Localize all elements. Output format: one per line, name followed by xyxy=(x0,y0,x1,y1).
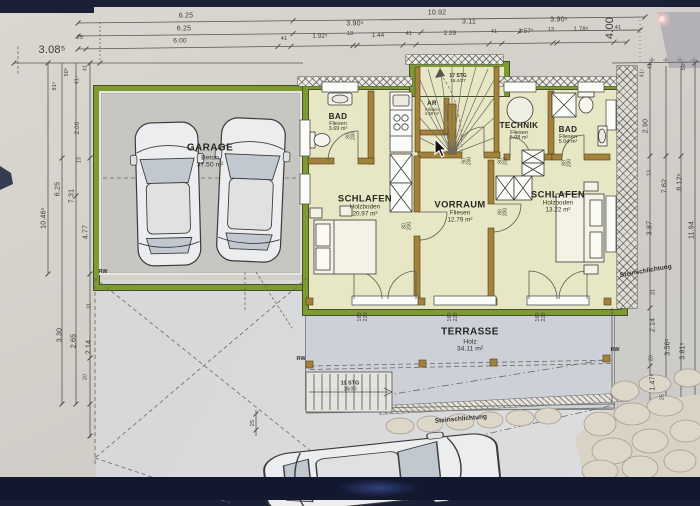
house-outline xyxy=(303,84,627,315)
dimension-label: 1.44 xyxy=(372,32,384,38)
dimension-label: 3.30 xyxy=(56,328,63,342)
terrasse-area xyxy=(306,303,614,409)
dimension-label: 50⁵ xyxy=(65,68,71,77)
dimension-label: 91⁵ xyxy=(53,82,59,91)
wall-hatching xyxy=(497,77,617,86)
dimension-label: 6.25 xyxy=(177,25,191,32)
dimension-label: 3.90⁵ xyxy=(346,20,364,27)
dimension-label: 41 xyxy=(281,37,288,43)
dimension-label: 2.65 xyxy=(70,334,77,348)
dimension-label: 41⁵ xyxy=(75,76,80,84)
dimension-label: 31 xyxy=(651,289,656,295)
dimension-label: 1.78⁵ xyxy=(573,27,588,33)
dimension-label: 1.47⁵ xyxy=(649,373,656,391)
dimension-label: 41 xyxy=(491,30,498,36)
dimension-label: 7.62 xyxy=(661,179,668,193)
dimension-label: 41 xyxy=(615,26,622,32)
edge-smudge xyxy=(0,166,13,190)
dimension-label: 41 xyxy=(648,63,653,69)
dimension-label: 13 xyxy=(647,170,652,176)
dimension-label: 4.77 xyxy=(82,225,89,239)
stairwell-bay-outline xyxy=(410,62,509,96)
dimension-label: 3.56⁵ xyxy=(664,338,671,356)
steinschlichtung-hatch-right xyxy=(617,66,637,308)
dimension-label: 20 xyxy=(83,374,88,380)
dimension-label: 41 xyxy=(406,32,413,38)
window-chrome-top-corner xyxy=(0,0,94,13)
dimension-label: 1.92⁵ xyxy=(312,34,327,40)
dimension-label: 10.46⁵ xyxy=(40,207,47,229)
window-chrome-bottom-bar xyxy=(0,477,700,500)
dimension-label: 6.00 xyxy=(173,39,186,46)
dimension-label: 3.81⁵ xyxy=(679,342,686,360)
dimension-label: 2.90 xyxy=(642,119,649,133)
dimension-label: 6.25 xyxy=(179,12,193,19)
dimension-label: 8.12⁵ xyxy=(676,173,683,191)
dimension-label: 41⁵ xyxy=(640,69,645,77)
wall-hatching xyxy=(406,55,503,64)
dimension-label: 13 xyxy=(347,32,354,38)
dimension-label: 13 xyxy=(77,157,82,163)
dimension-label: 4.00 xyxy=(605,17,617,39)
window-chrome-top-bar xyxy=(0,0,700,7)
dimension-label: 25 xyxy=(77,36,84,42)
dimension-label: 2.14 xyxy=(85,340,92,354)
dimension-label: 2.29 xyxy=(444,31,456,37)
screenshot-root: 6.2510.926.253.90⁵3.113.90⁵256.00411.92⁵… xyxy=(0,0,700,500)
dimension-label: 2.14 xyxy=(649,318,656,332)
photo-background-corner xyxy=(656,12,700,68)
dimension-label: 20 xyxy=(649,355,654,361)
dimension-label: 41 xyxy=(83,65,88,71)
dimension-label: 25 xyxy=(660,394,665,400)
garage-floor xyxy=(99,91,302,275)
dimension-label: 31 xyxy=(87,303,92,309)
dimension-label: 3.90⁵ xyxy=(550,16,568,23)
dimension-label: 6.25 xyxy=(54,182,61,196)
dimension-label: 3.11 xyxy=(462,18,476,25)
dimension-label: 10.92 xyxy=(428,9,447,16)
wall-hatching xyxy=(298,77,412,86)
dimension-label: 3.08⁵ xyxy=(39,45,66,57)
dimension-label: 13 xyxy=(548,28,555,34)
mouse-cursor xyxy=(434,138,450,165)
dimension-label: 1.57⁵ xyxy=(518,29,533,35)
dimension-label: 11.94 xyxy=(688,221,695,239)
dimension-label: 2.00 xyxy=(75,122,81,134)
floor-plan-photo: 6.2510.926.253.90⁵3.113.90⁵256.00411.92⁵… xyxy=(0,6,700,478)
dimension-label: 7.31 xyxy=(68,189,75,203)
dimension-label: 3.87 xyxy=(646,221,653,235)
